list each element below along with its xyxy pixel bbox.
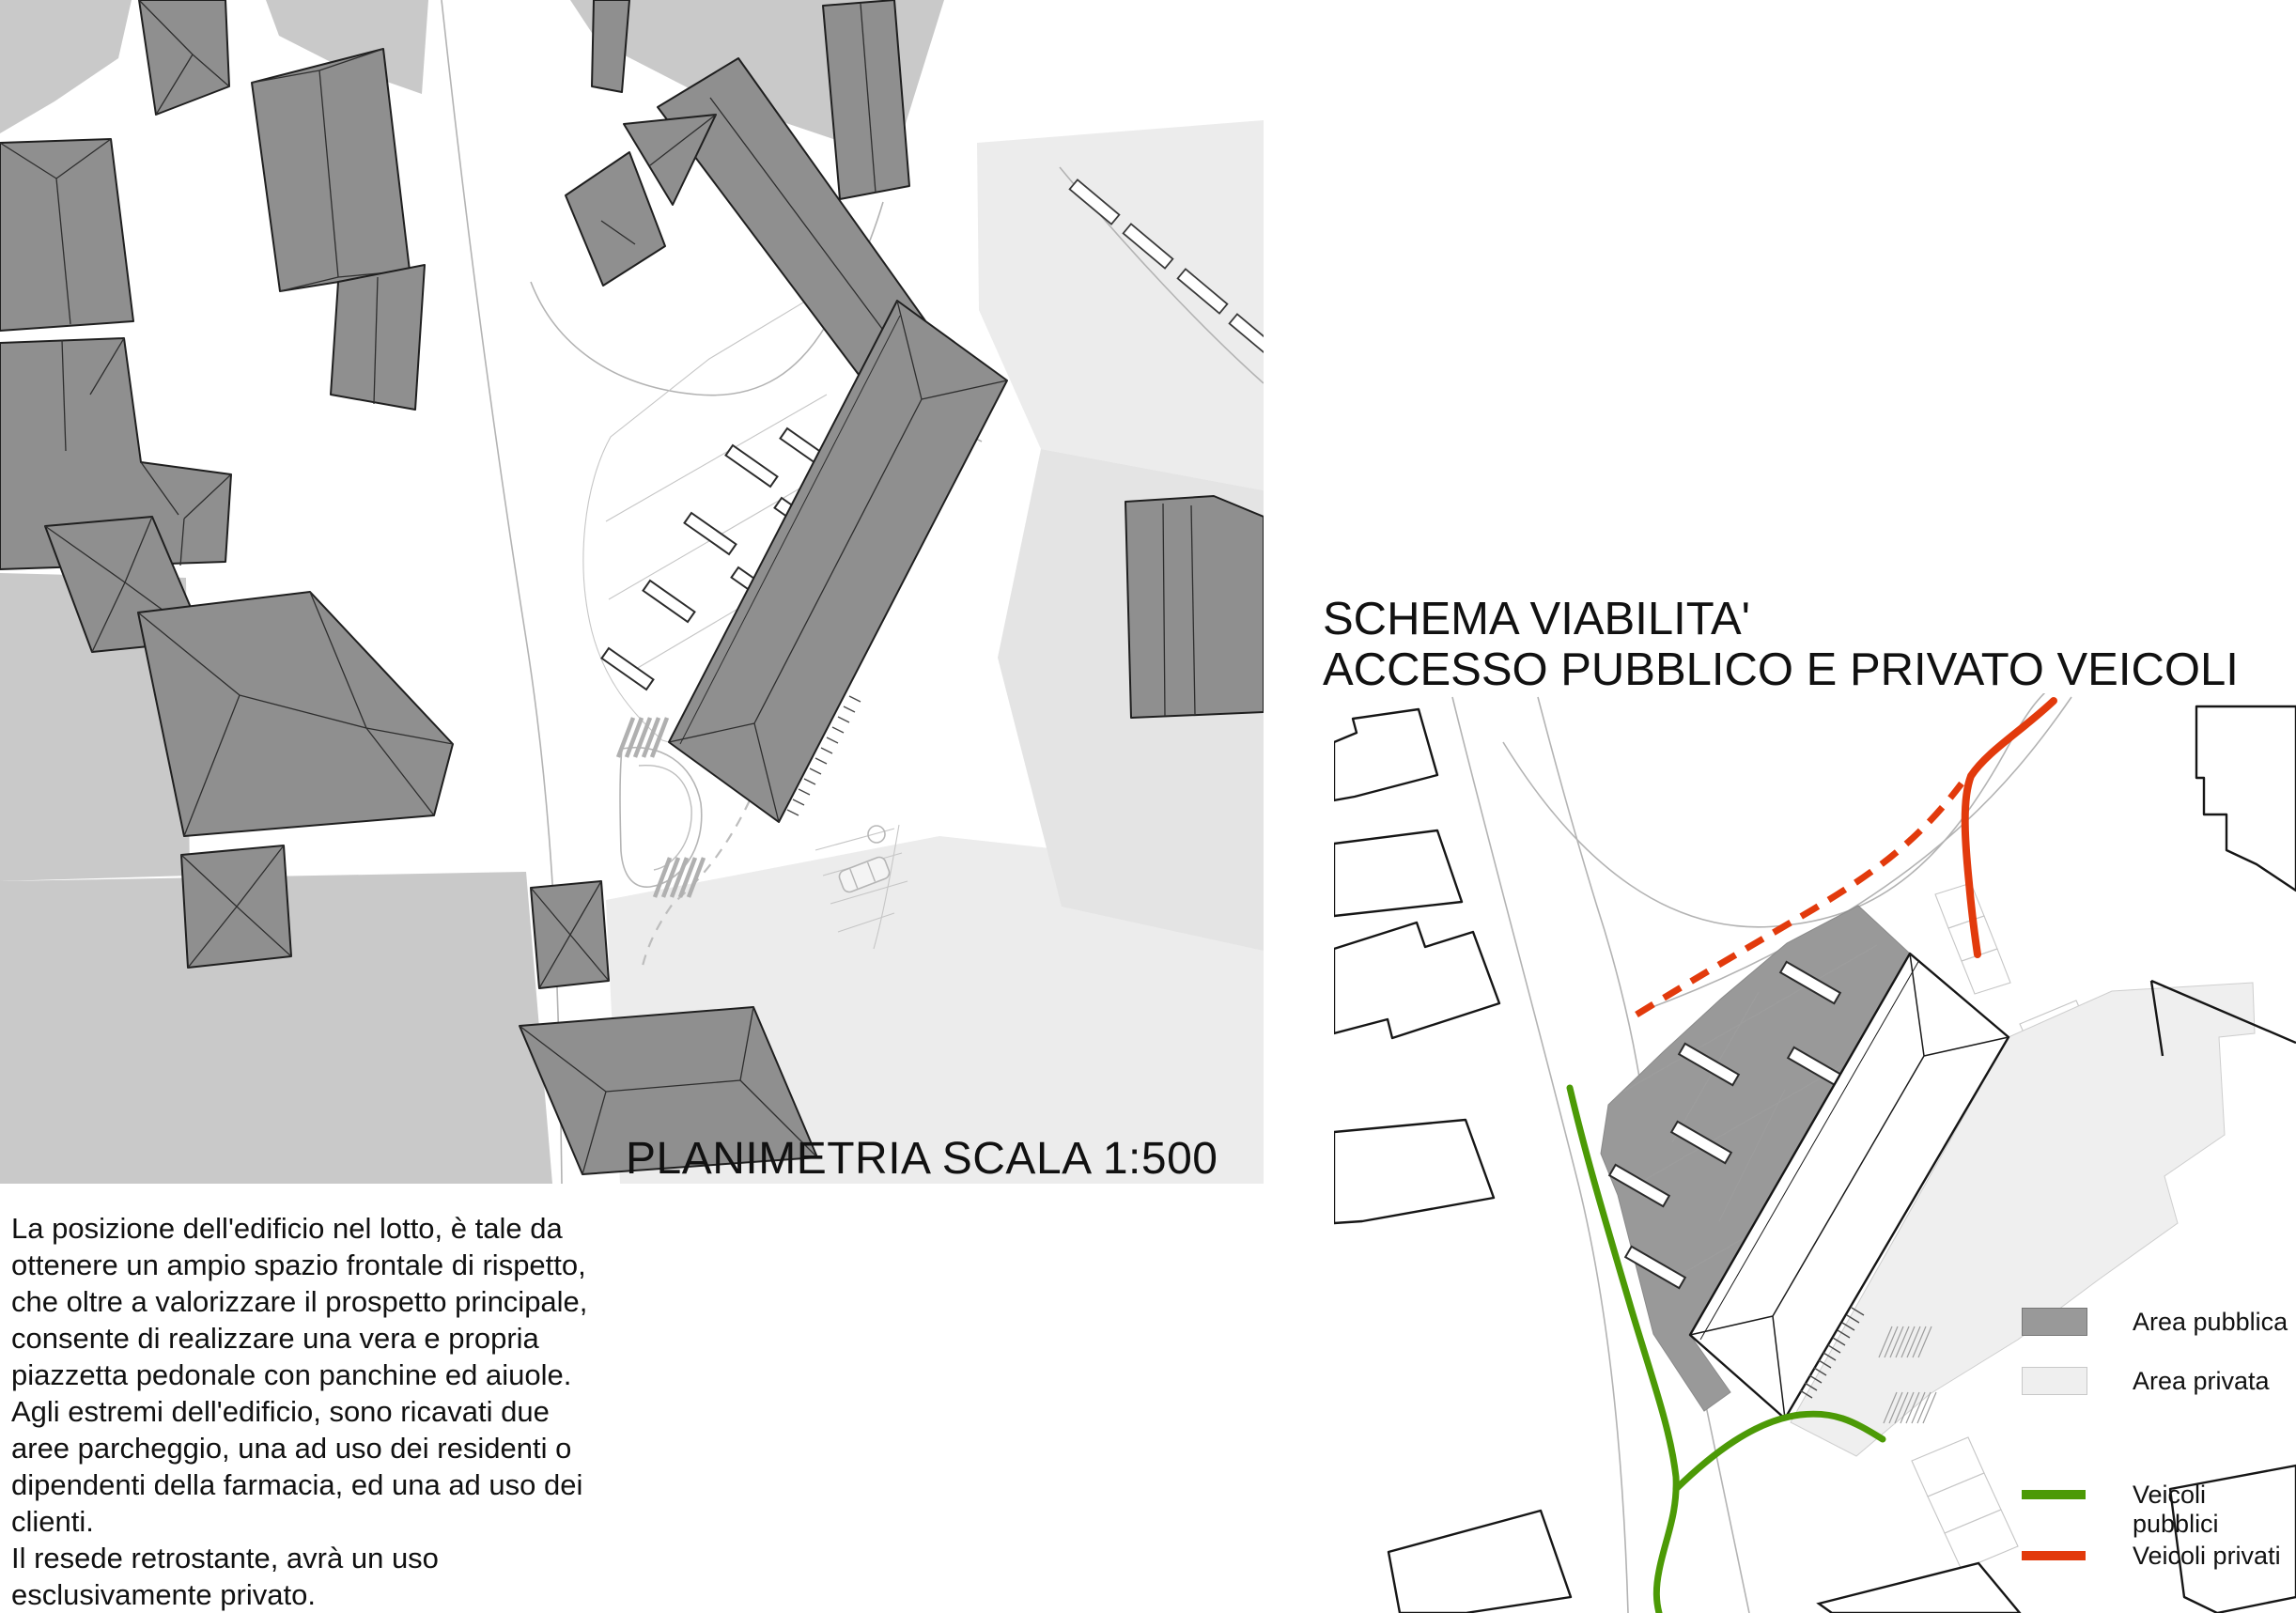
schema-title-line1: SCHEMA VIABILITA' [1323,594,2239,644]
left-site-plan [0,0,1279,1184]
legend-swatch-veicoli-privati [2022,1551,2086,1560]
building [181,845,291,968]
building [531,881,609,988]
building [138,592,453,836]
legend-label-area-pubblica: Area pubblica [2133,1308,2288,1337]
right-schema-map [1334,691,2296,1613]
building [139,0,229,115]
building [566,152,665,286]
building [1125,496,1264,718]
architectural-sheet: PLANIMETRIA SCALA 1:500 La posizione del… [0,0,2296,1613]
project-building [669,301,1007,822]
handicap-icon [868,826,885,843]
legend-label-veicoli-pubblici: Veicoli pubblici [2133,1481,2296,1539]
schema-title-line2: ACCESSO PUBBLICO E PRIVATO VEICOLI [1323,644,2239,695]
building [331,265,425,410]
legend-label-veicoli-privati: Veicoli privati [2133,1542,2281,1571]
legend-label-area-privata: Area privata [2133,1367,2270,1396]
description-text: La posizione dell'edificio nel lotto, è … [11,1210,669,1613]
legend-swatch-area-pubblica [2022,1308,2087,1336]
legend-swatch-veicoli-pubblici [2022,1490,2086,1499]
building [823,0,909,199]
building [592,0,629,92]
building [252,49,410,291]
plan-caption: PLANIMETRIA SCALA 1:500 [626,1133,1218,1185]
building [0,139,133,331]
legend-swatch-area-privata [2022,1367,2087,1395]
schema-title: SCHEMA VIABILITA' ACCESSO PUBBLICO E PRI… [1323,594,2239,695]
